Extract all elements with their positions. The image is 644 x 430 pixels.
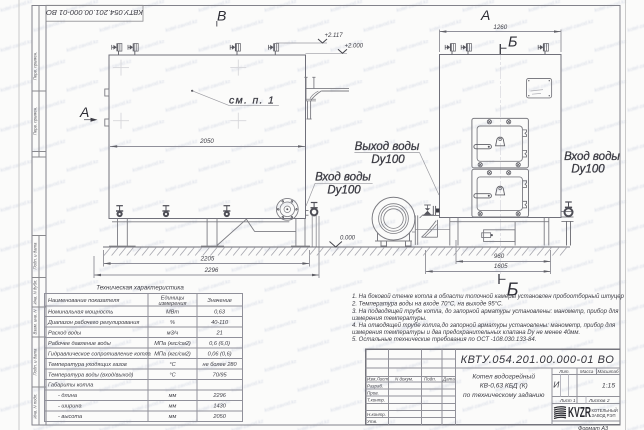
svg-text:1. На боковой стенке котла в: 1. На боковой стенке котла в области топ… [352,293,625,300]
svg-text:ЗАВОД РЭП: ЗАВОД РЭП [592,413,616,418]
svg-text:0,63: 0,63 [214,310,226,316]
svg-text:21: 21 [215,330,222,336]
svg-text:+2.000: +2.000 [345,43,364,49]
svg-text:Формат А3: Формат А3 [578,426,609,430]
svg-text:0,06 (0,6): 0,06 (0,6) [208,351,232,357]
svg-text:Dy100: Dy100 [327,185,361,197]
svg-text:Дата: Дата [442,377,455,382]
svg-text:Вход воды: Вход воды [315,172,371,184]
svg-text:Номинальная мощность: Номинальная мощность [48,310,113,316]
svg-text:Перв. примен.: Перв. примен. [33,107,38,136]
svg-text:2050: 2050 [212,414,226,420]
svg-text:В: В [217,8,226,24]
svg-text:3. На подводящей трубе котла,: 3. На подводящей трубе котла, до запорно… [352,308,619,315]
svg-text:Котел водогрейный: Котел водогрейный [472,372,535,380]
svg-text:Пров.: Пров. [367,390,379,395]
svg-text:Разраб.: Разраб. [367,383,383,388]
svg-text:КВТУ.054.201.00.000-01 ВО: КВТУ.054.201.00.000-01 ВО [46,8,143,17]
svg-text:1260: 1260 [493,24,507,31]
svg-text:4. На отводящей трубе котла,д: 4. На отводящей трубе котла,до запорной … [352,322,616,329]
svg-text:°С: °С [169,372,176,378]
svg-text:МВт: МВт [166,310,179,316]
svg-text:МПа (кгс/см2): МПа (кгс/см2) [154,341,191,347]
svg-text:измерения температуры.: измерения температуры. [352,316,427,322]
svg-text:Масса: Масса [580,369,594,374]
svg-text:- ширина: - ширина [58,404,82,410]
svg-text:измерения температуры и два пр: измерения температуры и два предохраните… [352,330,580,336]
svg-text:не более 280: не более 280 [203,362,238,368]
svg-text:Масштаб: Масштаб [597,369,618,374]
svg-text:см. п. 1: см. п. 1 [229,94,275,106]
svg-text:мм: мм [169,414,177,420]
svg-text:Dy100: Dy100 [571,164,605,176]
svg-text:Гидравлическое сопротивление к: Гидравлическое сопротивление котла [48,351,151,357]
svg-text:2050: 2050 [199,138,214,145]
svg-text:Наименование показателя: Наименование показателя [48,298,119,304]
svg-text:измерения: измерения [159,301,187,307]
svg-text:по техническому заданию: по техническому заданию [463,391,545,399]
svg-text:Н.контр.: Н.контр. [367,412,386,417]
svg-text:2296: 2296 [204,267,219,274]
svg-text:°С: °С [169,362,176,368]
svg-text:5. Остальные технические треб: 5. Остальные технические требования по О… [352,337,536,343]
svg-text:960: 960 [494,253,505,260]
svg-text:Инв. N дубл.: Инв. N дубл. [33,280,38,305]
svg-text:МПа (кгс/см2): МПа (кгс/см2) [154,351,191,357]
svg-text:2: 2 [606,398,610,403]
svg-text:Расход воды: Расход воды [48,330,81,336]
svg-text:40-110: 40-110 [211,320,229,326]
svg-text:А: А [480,7,490,23]
svg-text:Выход воды: Выход воды [355,141,420,153]
svg-text:Лит.: Лит. [558,369,570,374]
svg-text:Лист: Лист [559,398,572,403]
svg-text:КВ-0,63 КБД (К): КВ-0,63 КБД (К) [480,383,528,390]
svg-text:+2.117: +2.117 [325,33,344,39]
svg-text:Подп. и дата: Подп. и дата [33,242,38,270]
svg-text:Dy100: Dy100 [371,154,405,166]
svg-text:2296: 2296 [212,393,226,399]
svg-text:1430: 1430 [213,404,226,410]
svg-text:Инв. N подл.: Инв. N подл. [33,393,38,418]
svg-text:Габариты котла: Габариты котла [48,383,93,389]
svg-text:Температура воды (вход/выход): Температура воды (вход/выход) [48,372,134,378]
svg-text:1605: 1605 [494,263,508,270]
svg-text:2. Температура воды на входе: 2. Температура воды на входе 70°С, на вы… [351,302,503,308]
svg-text:Перв. примен.: Перв. примен. [33,52,38,81]
svg-text:Техническая характеристика: Техническая характеристика [96,285,184,292]
svg-text:KVZR: KVZR [568,404,591,421]
svg-text:Утв.: Утв. [367,419,377,424]
svg-text:м3/ч: м3/ч [167,330,178,336]
svg-text:Изм.Лист: Изм.Лист [367,377,388,382]
svg-text:И: И [553,380,560,390]
svg-text:70/95: 70/95 [213,372,228,378]
svg-text:Значение: Значение [207,298,232,304]
svg-text:КВТУ.054.201.00.000-01 ВО: КВТУ.054.201.00.000-01 ВО [461,354,615,366]
svg-text:Б: Б [508,34,517,50]
svg-text:мм: мм [169,393,177,399]
svg-text:А: А [79,104,89,120]
svg-text:Вход воды: Вход воды [564,151,620,163]
svg-text:Т.контр.: Т.контр. [367,398,385,403]
svg-text:Температура уходящих газов: Температура уходящих газов [48,362,127,368]
svg-text:0.000: 0.000 [340,236,356,242]
svg-text:- высота: - высота [58,414,82,420]
svg-text:Подп. и дата: Подп. и дата [33,348,38,376]
svg-text:Рабочее давление воды: Рабочее давление воды [48,341,111,347]
svg-text:- длина: - длина [58,393,77,399]
svg-text:%: % [170,320,175,326]
svg-text:Подп.: Подп. [424,377,436,382]
svg-text:N докум.: N докум. [395,377,413,382]
svg-text:мм: мм [169,404,177,410]
svg-text:Листов: Листов [588,398,606,403]
svg-text:Взам. инв. N: Взам. инв. N [33,309,38,335]
svg-text:1:15: 1:15 [602,383,615,390]
svg-text:0,6 (6,0): 0,6 (6,0) [209,341,230,347]
svg-text:2205: 2205 [200,255,215,262]
svg-text:Диапазон рабочего регулировани: Диапазон рабочего регулирования [47,320,139,326]
